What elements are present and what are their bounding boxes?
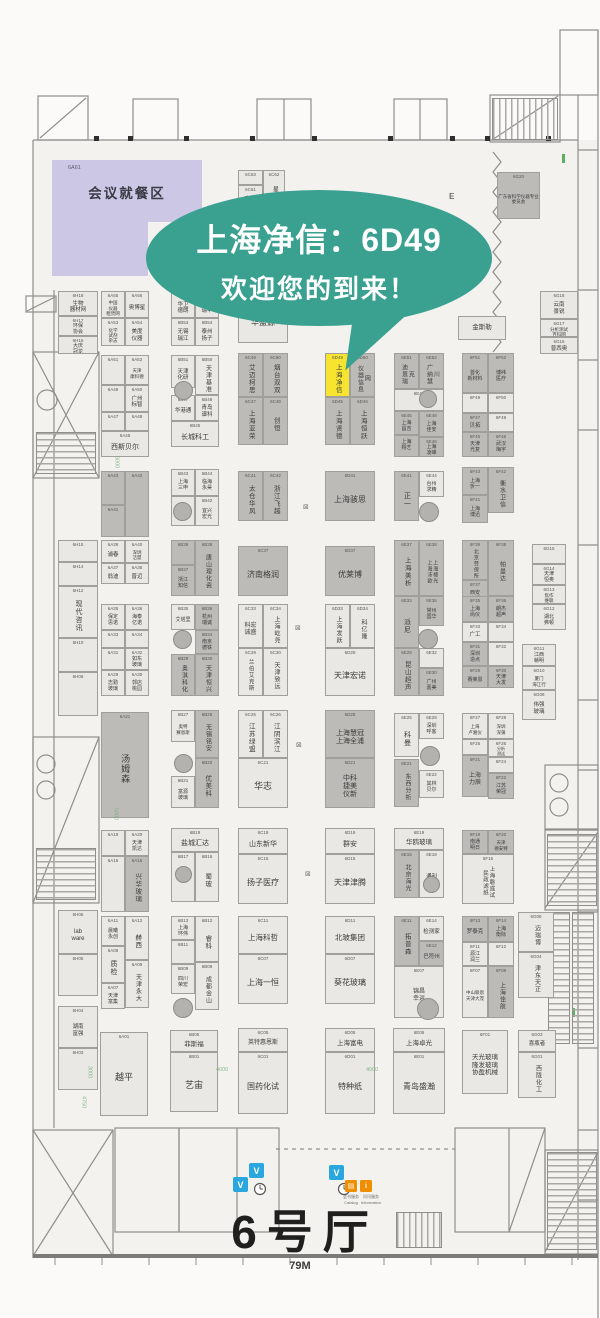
booth-6G15: 6G15 (532, 544, 566, 564)
booth-6F20: 6F20天津 德安特 (488, 830, 514, 854)
booth-6E11: 6E11拓普森 (394, 916, 419, 966)
booth-6B36: 6B36杭州 瑞诚 (195, 604, 219, 630)
service-circle (423, 876, 440, 893)
booth-6H14: 6H14 (58, 562, 98, 586)
booth-6G01: 6G01西陇化工 (518, 1052, 556, 1098)
promo-bubble: 上海净信：6D49 欢迎您的到来！ (146, 190, 492, 326)
booth-6C21: 6C21华志 (238, 758, 288, 808)
booth-6B38: 6B38唐山理化瓷 (195, 540, 219, 596)
dimension-label: 3000 (86, 1066, 92, 1078)
booth-6B05: 6B05菲斯福 (170, 1030, 218, 1052)
booth-6A19: 6A19 (101, 830, 125, 856)
pillar-icon: ⊠ (296, 742, 302, 749)
booth-6H04: 6H04湖南 富强 (58, 1006, 98, 1048)
booth-6G04: 6G04津东天正 (518, 952, 554, 998)
booth-6A12: 6A12赫西 (125, 916, 149, 960)
booth-6H18: 6H18生物 器材网 (58, 291, 98, 316)
booth-6F29: 6F29赛莱恩 (462, 666, 488, 688)
booth-6F45: 6F45天津 光复 (462, 432, 488, 457)
booth-6B35: 6B35艾塔里 (171, 604, 195, 630)
booth-6E38: 6E38上海沛欧 上海棱光 (419, 540, 444, 596)
booth-6G18: 6G18云南 景锐 (540, 291, 578, 319)
booth-6B08: 6B08成都金山 (195, 962, 219, 1010)
booth-6A29: 6A29志勤 玻璃 (101, 670, 125, 696)
booth-6G13: 6G13焦作 维联 (532, 585, 566, 604)
booth-6E05: 6E05上海卓光 (393, 1028, 445, 1052)
booth-6D33: 6D33上海发跃 (325, 604, 350, 648)
booth-6G08: 6G08伟强 玻璃 (522, 690, 556, 720)
booth-6E28: 6E28深圳 呼客 (419, 713, 444, 739)
booth-6C30: 6C30天津致远 (263, 648, 288, 696)
booth-6B12: 6B12睿科 (195, 916, 219, 962)
booth-6B01: 6B01艺宙 (170, 1052, 218, 1112)
booth-6C48: 6C48创恒 (263, 397, 288, 445)
booth-6C15: 6C15扬子医疗 (238, 854, 288, 904)
booth-6B44: 6B44临海 永昊 (195, 469, 219, 496)
booth-6C34: 6C34上海屹尧 (263, 604, 288, 648)
booth-6G10: 6G10厦门 海江行 (522, 666, 556, 690)
booth-6F49: 6F49 (462, 393, 488, 413)
booth-6D05: 6D05上海富电 (325, 1028, 375, 1052)
booth-6H16: 6H16大庆 冠龙 (58, 336, 98, 354)
booth-6F27: 6F27上海 卢湘仪 (462, 713, 488, 739)
booth-6B09: 6B09四川 荣宏 (171, 964, 195, 994)
booth-6F07: 6F07中山联恩 天津大茂 (462, 966, 488, 1018)
booth-6F14: 6F14上海 衡际 (488, 916, 514, 942)
booth-6F26: 6F26分析 测试 论坛 (488, 739, 514, 757)
booth-6E33: 6E33派尼 (394, 596, 419, 648)
exhibition-floor-plan: 6A61 会议就餐区 6B59黎兴 仪器6B60房山 黎明6B58天津 天科6C… (0, 0, 600, 1318)
service-circle (174, 381, 193, 400)
booth-6E22: 6E22其林 贝尔 (419, 770, 444, 798)
dimension-label: 6000 (113, 456, 119, 468)
hall-name: 6号厅 (150, 1196, 460, 1262)
booth-6C63: 6C63 (238, 170, 263, 185)
booth-6B48: 6B48青岛 谱科 (195, 395, 219, 421)
booth-6B37: 6B37浙江 知信 (171, 565, 195, 596)
booth-6C42: 6C42浙江飞越 (263, 471, 288, 521)
booth-6C01: 6C01国药化试 (238, 1052, 288, 1114)
booth-6F51: 6F51首化 新材料 (462, 353, 488, 393)
booth-6F11: 6F11源江 润兰 (462, 942, 488, 966)
booth-6F28: 6F28深圳 深蒲 (488, 713, 514, 739)
booth-6A16: 6A16兴华玻璃 (125, 856, 149, 912)
booth-6E44: 6E44台州 求精 (419, 471, 444, 497)
booth-6A35: 6A35保定 思诺 (101, 604, 125, 630)
booth-6F31: 6F31深圳 造点 (462, 642, 488, 666)
booth-6E37: 6E37上海美析 (394, 540, 419, 596)
booth-6E12: 6E12巴符州 (419, 941, 444, 966)
booth-6C41: 6C41太仓华风 (238, 471, 263, 521)
booth-6C29: 6C29兰伯艾克斯 (238, 648, 263, 696)
booth-6E48: 6E48上海 佳安 (419, 411, 444, 437)
booth-6D01: 6D01特种纸 (325, 1052, 375, 1114)
booth-6F46: 6F46武汉 梅宇 (488, 432, 514, 457)
booth-6A31: 6A31 (101, 648, 125, 670)
dining-area-code: 6A61 (68, 165, 81, 171)
dimension-label: 4750 (80, 1096, 86, 1108)
booth-6F19: 6F19南通 明日 (462, 830, 488, 854)
booth-6F42: 6F42衡水卫信 (488, 467, 514, 513)
booth-6A49: 6A49 (101, 385, 125, 412)
booth-6G06: 6G06迈瑞博 (518, 912, 554, 952)
booth-6F21: 6F21上海 力辰 (462, 755, 488, 797)
booth-6E14: 6E14检测家 (419, 916, 444, 941)
booth-6F33: 6F33广工 (462, 622, 488, 642)
service-circle (175, 866, 192, 883)
booth-6A48: 6A48 (125, 412, 149, 431)
booth-6D21: 6D21中科 捷美 仪新 (325, 758, 375, 808)
booth-6D37: 6D37优莱博 (325, 546, 375, 596)
booth-6B11: 6B11 (171, 940, 195, 964)
booth-6B22: 6B22优美科 (195, 758, 219, 808)
booth-6B26: 6B26无锡铭安 (195, 710, 219, 758)
dimension-label: 5000 (112, 808, 118, 820)
booth-6A54: 6A54美度 仪器 (125, 318, 149, 346)
booth-6A30: 6A30郭店 桃园 (125, 670, 149, 696)
stairs-right (547, 834, 597, 906)
booth-6H17: 6H17环保 协会 (58, 316, 98, 336)
pillar-icon: ⊠ (295, 625, 301, 632)
booth-6D41: 6D41上海骇思 (325, 471, 375, 521)
booth-6A36: 6A36海泰 亿诺 (125, 604, 149, 630)
booth-6E41: 6E41正一 (394, 471, 419, 521)
vending-icon: V (329, 1165, 344, 1180)
booth-6C49: 6C49艾迈柯思 (238, 353, 263, 397)
booth-6C47: 6C47上海亚荣 (238, 397, 263, 445)
booth-6D11: 6D11北玻集团 (325, 916, 375, 954)
booth-6E45: 6E45上海 昌吉 (394, 411, 419, 435)
booth-6B29: 6B29奥淇科化 (171, 654, 195, 696)
booth-6F48: 6F48 (488, 413, 514, 432)
service-circle (419, 390, 437, 408)
booth-6B45: 6B45长城科工 (171, 421, 219, 447)
booth-6E19: 6E19华鸥玻璃 (394, 828, 444, 850)
booth-6G14: 6G14天津 恒奥 (532, 564, 566, 585)
booth-6B27: 6B27奥特 赛恩斯 (171, 710, 195, 742)
booth-6B50: 6B50天津基准 (195, 355, 219, 395)
booth-6D15: 6D15天津津腾 (325, 854, 375, 904)
pillar-icon: ⊠ (305, 871, 311, 878)
booth-6F50: 6F50 (488, 393, 514, 413)
booth-6E29: 6E29昆山超声 (394, 648, 419, 696)
booth-6D46: 6D46上海恒跃 (350, 397, 375, 445)
vending-icon: V (233, 1177, 248, 1192)
booth-6C05: 6C05英特惠恩斯 (238, 1028, 288, 1052)
booth-6D49: 6D49上海净信 (325, 353, 350, 397)
stairs-left-upper (36, 432, 96, 474)
booth-6A21: 6A21汤姆森 (101, 712, 149, 818)
booth-6C26: 6C26江阴滨江 (263, 710, 288, 758)
exit-label: E (449, 193, 454, 201)
booth-6A52: 6A52天津 康科德 (125, 355, 149, 385)
booth-6B42: 6B42宜兴 宏光 (195, 496, 219, 526)
booth-6A01: 6A01越平 (100, 1032, 148, 1116)
booth-6A33: 6A33 (101, 630, 125, 648)
booth-6B21: 6B21富源 玻璃 (171, 776, 195, 808)
service-circle (420, 746, 440, 766)
booth-6D45: 6D45上海贤德 (325, 397, 350, 445)
booth-6A42: 6A42 (125, 471, 149, 537)
booth-6F39: 6F39北京劳保所 (462, 540, 488, 580)
booth-6F32: 6F32 (488, 642, 514, 666)
booth-6F13: 6F13罗泰克 (462, 916, 488, 942)
service-circle (173, 998, 193, 1018)
booth-6H12: 6H12现代咨讯 (58, 586, 98, 638)
booth-6A32: 6A32如东 玻璃 (125, 648, 149, 670)
booth-6C33: 6C33科宏 诚盛 (238, 604, 263, 648)
booth-6G20: 6G20广东省科学仪器专业委员会 (497, 172, 540, 219)
booth-6A34: 6A34 (125, 630, 149, 648)
booth-6A15: 6A15 (101, 856, 125, 912)
information-label: 问讯服务Information (356, 1194, 386, 1205)
booth-cell: 金斯勒 (458, 316, 506, 340)
booth-6E32: 6E32 (419, 648, 444, 668)
booth-6E25: 6E25科曼 (394, 713, 419, 757)
booth-6D19: 6D19群安 (325, 828, 375, 854)
service-circle (417, 998, 439, 1020)
service-circle (418, 629, 438, 649)
promo-bubble-subtitle: 欢迎您的到来！ (146, 269, 492, 306)
booth-6F43: 6F43上海 忻一 (462, 467, 488, 495)
booth-6A08: 6A08质检 (101, 946, 125, 983)
booth-6C25: 6C25江苏绿盟 (238, 710, 263, 758)
booth-6A07: 6A07天津 富集 (101, 983, 125, 1009)
booth-6H15: 6H15 (58, 540, 98, 562)
service-circle (173, 502, 192, 521)
hall-width-label: 79M (255, 1260, 345, 1272)
booth-6E15: 6E15北京海光 (394, 850, 419, 898)
booth-6A20: 6A20天津 凯达 (125, 830, 149, 856)
booth-6D34: 6D34科亿隆 (350, 604, 375, 648)
stairs-left-lower (36, 848, 96, 900)
booth-6G16: 6G16普西奥 (540, 337, 578, 354)
booth-6F38: 6F38帕曼达 (488, 540, 514, 596)
booth-6F30: 6F30天津 大发 (488, 666, 514, 688)
booth-6A11: 6A11晨曦 永创 (101, 916, 125, 946)
service-circle (419, 502, 439, 522)
service-circle (174, 754, 193, 773)
booth-6A45: 6A45西斯贝尔 (101, 431, 149, 457)
booth-6C07: 6C07上海一恒 (238, 954, 288, 1004)
booth-6E51: 6E51迪恩瑞克 (394, 353, 419, 389)
booth-6F34: 6F34 (488, 622, 514, 642)
booth-6E30: 6E30广州 嘉美 (419, 668, 444, 696)
booth-6B30: 6B30天津恒兴 (195, 654, 219, 696)
booth-6A47: 6A47 (101, 412, 125, 431)
booth-6B13: 6B13上海 环伟 (171, 916, 195, 940)
service-circle (173, 630, 192, 649)
booth-6A40: 6A40深圳 洁盟 (125, 540, 149, 563)
booth-6G17: 6G17分析测试 百科网 (540, 319, 578, 337)
vending-icon: V (249, 1163, 264, 1178)
stairs-top-right (492, 98, 558, 140)
booth-6H06: 6H06lab ware (58, 910, 98, 954)
booth-6A41: 6A41 (101, 505, 125, 537)
booth-6A39: 6A39浦春 (101, 540, 125, 563)
booth-6F41: 6F41上海 博迅 (462, 495, 488, 523)
booth-6F12: 6F12 (488, 942, 514, 966)
promo-bubble-title: 上海净信：6D49 (146, 215, 492, 261)
booth-6C11: 6C11上海科哲 (238, 916, 288, 954)
booth-6F24: 6F24 (488, 757, 514, 773)
booth-6G12: 6G12湖北 弗顿 (532, 604, 566, 630)
dining-area-lower (52, 160, 148, 276)
dimension-label: 4000 (366, 1068, 378, 1074)
booth-6A43: 6A43 (101, 471, 125, 505)
booth-6A09: 6A09天津永大 (125, 960, 149, 1008)
booth-6F22: 6F22江苏 荣冠 (488, 773, 514, 799)
booth-6C37: 6C37济南格润 (238, 546, 288, 596)
booth-6G03: 6G03喜瓶者 (518, 1030, 556, 1052)
dining-area-label: 会议就餐区 (52, 182, 202, 202)
stairs-bottom-right (547, 1152, 597, 1250)
booth-6B53: 6B53无锡 瑞江 (171, 318, 195, 346)
booth-6E46: 6E46上海 凌峰 (419, 437, 444, 457)
booth-6H05: 6H05 (58, 954, 98, 996)
booth-6D25: 6D25上海慧冠 上海全浦 (325, 710, 375, 758)
booth-6F08: 6F08上海佳航 (488, 966, 514, 1018)
booth-6B39: 6B39 (171, 540, 195, 565)
escalator-right-b (572, 912, 594, 1044)
booth-6E52: 6E52广纳慧川 (419, 353, 444, 389)
booth-6A38: 6A38普迈 (125, 563, 149, 584)
catalog-icon: ▤ (345, 1180, 357, 1192)
booth-6F47: 6F47贝拓 (462, 413, 488, 432)
booth-6D07: 6D07葵花玻璃 (325, 954, 375, 1004)
booth-6F36: 6F36朗杰 超声 (488, 596, 514, 622)
booth-6F35: 6F35上海 尚仪 (462, 596, 488, 622)
booth-6F52: 6F52博纬 医疗 (488, 353, 514, 393)
booth-6A53: 6A53化学 试剂 杂志 (101, 318, 125, 346)
booth-6H08: 6H08 (58, 672, 98, 716)
booth-6E21: 6E21东西分析 (394, 759, 419, 807)
booth-6F01: 6F01天光玻璃 隆发玻璃 协盈机械 (462, 1030, 508, 1094)
booth-6B34: 6B34南京 德铁 (195, 630, 219, 654)
booth-6B16: 6B16蜀玻 (195, 852, 219, 902)
booth-6A51: 6A51 (101, 355, 125, 385)
booth-6F25: 6F25 (462, 739, 488, 755)
booth-6B19: 6B19盐城汇达 (171, 828, 219, 852)
booth-6E36: 6E36常州 国华 (419, 596, 444, 626)
booth-6A55: 6A55中国 仪器 租赁网 (101, 291, 125, 318)
booth-6H10: 6H10 (58, 638, 98, 672)
booth-6C19: 6C19山东新华 (238, 828, 288, 854)
booth-6E01: 6E01青岛盛瀚 (393, 1052, 445, 1114)
booth-6A37: 6A37翁迪 (101, 563, 125, 584)
booth-6B43: 6B43上海 三申 (171, 469, 195, 496)
dimension-label: 4000 (216, 1068, 228, 1074)
information-icon: i (360, 1180, 372, 1192)
pillar-icon: ⊠ (303, 504, 309, 511)
booth-6A50: 6A50广州 标智 (125, 385, 149, 412)
booth-6D29: 6D29天津宏诺 (325, 648, 375, 696)
booth-6C50: 6C50烟台双双 (263, 353, 288, 397)
booth-6F15: 6F15民政滤纸 上海磐彧试 (462, 854, 514, 904)
booth-6B54: 6B54泰州 扬子 (195, 318, 219, 346)
booth-cell: 上海 翔艺 (394, 435, 419, 457)
booth-6G11: 6G11江西 赣明 (522, 644, 556, 666)
